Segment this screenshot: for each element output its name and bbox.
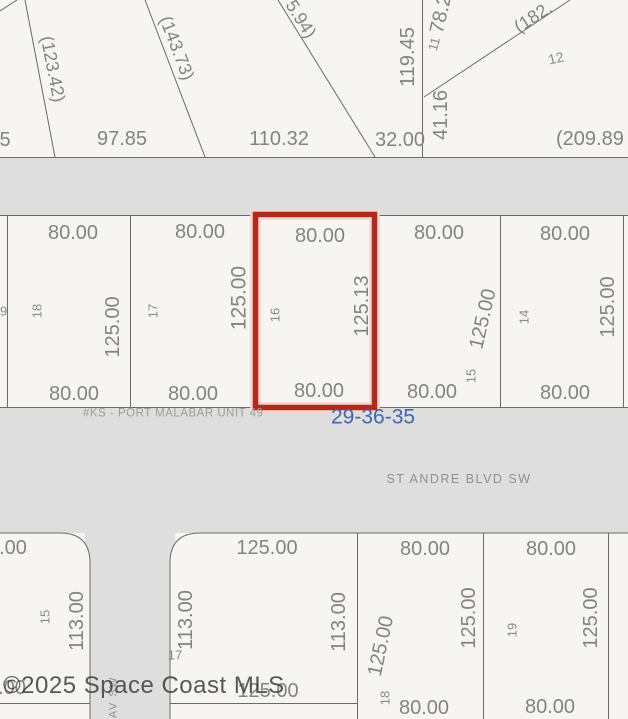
- dim-label: 80.00: [399, 698, 449, 718]
- lot-number: 18: [31, 304, 44, 318]
- road-band-top: [0, 157, 628, 215]
- dim-label: 80.00: [175, 222, 225, 242]
- dim-label: 80.00: [540, 224, 590, 244]
- dim-label: 32.00: [375, 130, 425, 150]
- dim-label: 125.00: [598, 276, 618, 337]
- dim-label: 80.00: [525, 697, 575, 717]
- dim-label: 113.00: [176, 590, 196, 650]
- dim-label: 113.00: [329, 592, 349, 652]
- lot-number: 12: [547, 50, 565, 67]
- dim-label: 80.00: [414, 223, 464, 243]
- dim-label: 80.00: [407, 382, 457, 402]
- dim-label-partial: (209.89: [556, 129, 624, 149]
- lot-number: 15: [465, 369, 478, 383]
- dim-label: 80.00: [400, 539, 450, 559]
- dim-label: 41.16: [431, 90, 451, 140]
- dim-label: 80.00: [49, 384, 99, 404]
- dim-label-partial: .00: [0, 538, 27, 558]
- lot-number: 15: [39, 610, 52, 624]
- lot-number: 11: [426, 36, 442, 52]
- dim-label: 125.00: [581, 587, 601, 648]
- dim-label: 110.32: [249, 129, 309, 149]
- lot-number: 19: [506, 623, 519, 637]
- dim-label: 80.00: [295, 226, 345, 246]
- dim-label: 125.00: [236, 538, 297, 558]
- plat-map: (123.42) (143.73) 5.94) 97.85 110.32 5 1…: [0, 0, 628, 719]
- dim-label: 80.00: [526, 539, 576, 559]
- dim-label: 80.00: [48, 223, 98, 243]
- section-township-range: 29-36-35: [331, 407, 415, 428]
- lot-number: 18: [379, 691, 392, 705]
- dim-label-partial: 5: [0, 130, 11, 150]
- lot-number-partial: 19: [0, 305, 7, 318]
- dim-label: 125.00: [459, 587, 479, 648]
- dim-label: 125.00: [103, 296, 123, 357]
- dim-label: 97.85: [97, 129, 147, 149]
- lot-number: 17: [147, 304, 160, 318]
- lot-number-subject: 16: [269, 308, 282, 322]
- dim-label: 80.00: [168, 384, 218, 404]
- mls-watermark: ©2025 Space Coast MLS: [3, 674, 285, 698]
- dim-label: 125.13: [352, 275, 372, 336]
- lot-number: 17: [168, 649, 182, 662]
- dim-label: 80.00: [294, 381, 344, 401]
- dim-label: 80.00: [540, 383, 590, 403]
- dim-label: 125.00: [229, 266, 250, 330]
- parcel-linework: [0, 0, 628, 719]
- plat-name-label: #KS - PORT MALABAR UNIT 49: [83, 408, 263, 420]
- lot-number: 14: [518, 310, 531, 324]
- road-band-st-andre: [0, 407, 628, 533]
- dim-label: 113.00: [67, 591, 87, 651]
- street-name-label: ST ANDRE BLVD SW: [386, 473, 531, 486]
- dim-label: 119.45: [398, 27, 418, 87]
